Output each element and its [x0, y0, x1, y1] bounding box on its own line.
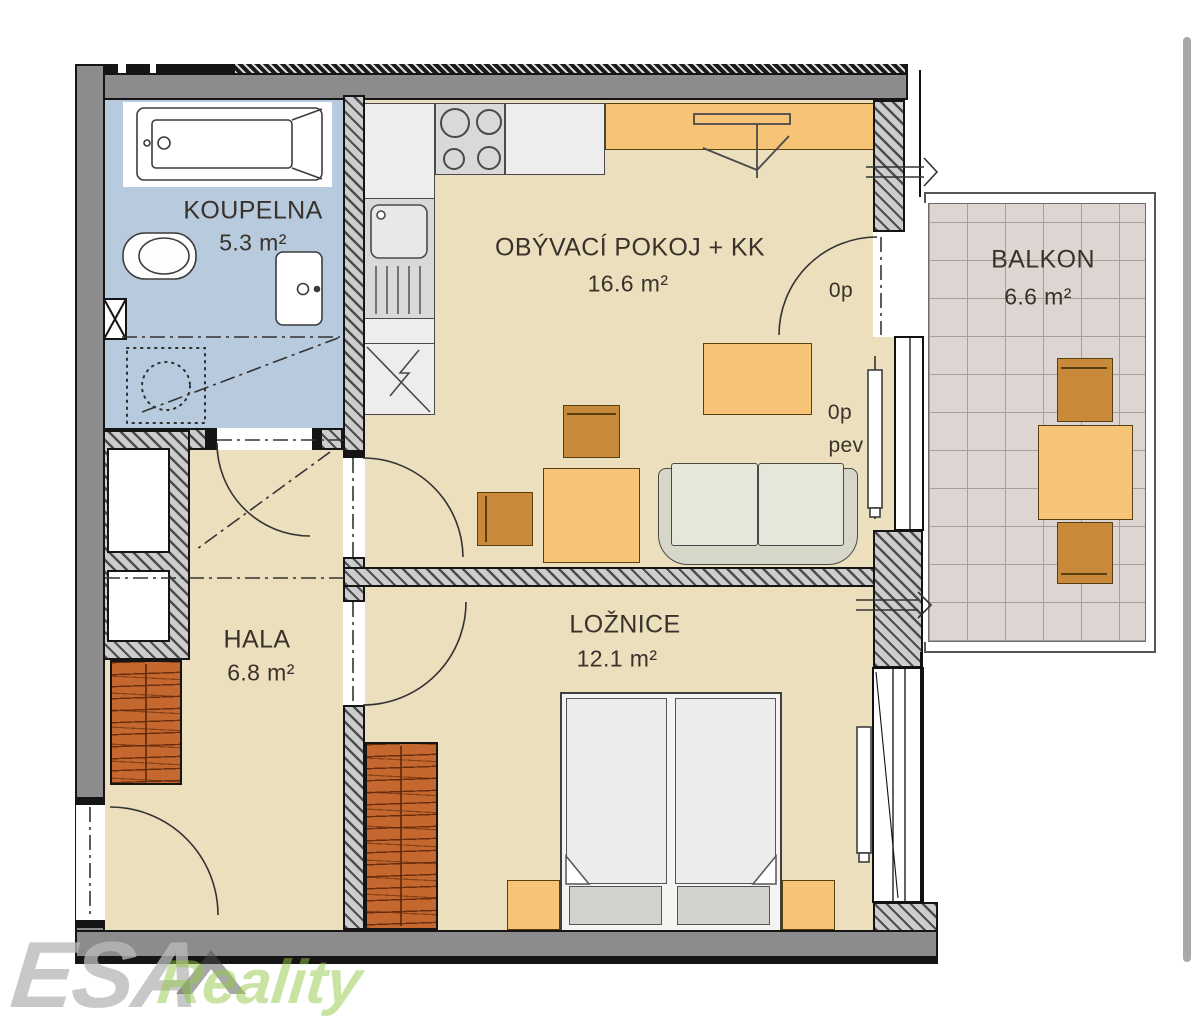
- stove: [435, 103, 505, 175]
- kitchen-counter-mid: [363, 318, 435, 345]
- label-bedroom-area: 12.1 m²: [577, 646, 658, 673]
- label-window-parapet: 0p: [828, 401, 852, 425]
- sofa-cushion-left: [671, 463, 758, 546]
- label-hall-area: 6.8 m²: [227, 660, 295, 687]
- label-bathroom-name: KOUPELNA: [183, 197, 322, 226]
- bed-pillow-left: [569, 886, 662, 925]
- bed-pillow-right: [677, 886, 770, 925]
- label-balcony-door-parapet: 0p: [829, 279, 853, 303]
- label-bathroom-area: 5.3 m²: [219, 230, 287, 257]
- label-hall-name: HALA: [224, 626, 291, 655]
- door-post: [343, 450, 365, 458]
- wall-bath-bottom-right: [320, 428, 343, 450]
- shaft-lower: [107, 570, 170, 642]
- bedroom-window: [873, 668, 923, 902]
- hall-wardrobe: [110, 660, 182, 785]
- balcony-table: [1038, 425, 1133, 520]
- top-wall-gap1: [118, 64, 126, 73]
- wall-hall-bedroom: [343, 705, 365, 930]
- pier-top-right: [873, 100, 905, 232]
- shaft-upper: [107, 448, 170, 553]
- bedroom-wardrobe: [365, 742, 438, 930]
- balcony-chair-bottom: [1057, 522, 1113, 584]
- nightstand-left: [507, 880, 560, 930]
- balcony-door-gap: [873, 232, 923, 337]
- top-wall-gap2: [150, 64, 156, 73]
- pier-mid-right: [873, 530, 923, 668]
- label-bedroom-name: LOŽNICE: [569, 611, 680, 640]
- watermark-reality-text: Reality: [155, 952, 365, 1014]
- bathtub-platform: [123, 102, 332, 187]
- pier-bottom-right: [873, 902, 938, 932]
- label-balcony-area: 6.6 m²: [1004, 284, 1072, 311]
- door-post: [207, 428, 217, 450]
- floor-plan: KOUPELNA 5.3 m² OBÝVACÍ POKOJ + KK 16.6 …: [0, 0, 1200, 1027]
- living-window: [895, 337, 923, 530]
- sofa-cushion-right: [758, 463, 844, 546]
- dining-chair-top: [563, 405, 620, 458]
- dining-chair-left: [477, 492, 533, 546]
- scrollbar[interactable]: [1183, 37, 1191, 962]
- living-room-floor-window-bay: [877, 337, 897, 530]
- wall-living-bedroom: [343, 567, 877, 587]
- kitchen-counter-right: [505, 103, 605, 175]
- top-wall: [78, 73, 908, 100]
- label-balcony-name: BALKON: [991, 246, 1095, 275]
- entrance-door-gap: [76, 805, 105, 920]
- label-window-fixed: pev: [828, 434, 863, 458]
- label-living-area: 16.6 m²: [588, 271, 669, 298]
- door-post: [76, 797, 105, 805]
- kitchen-fridge-unit: [363, 343, 435, 415]
- facade-lines: [920, 70, 921, 902]
- bed-mattress-left: [566, 698, 667, 884]
- balcony-chair-top: [1057, 358, 1113, 422]
- kitchen-sink-unit: [363, 198, 435, 320]
- dining-table: [543, 468, 640, 563]
- label-living-name: OBÝVACÍ POKOJ + KK: [495, 234, 765, 263]
- bed-mattress-right: [675, 698, 776, 884]
- top-wall-hatch: [235, 64, 905, 73]
- living-wardrobe: [605, 103, 875, 150]
- side-table: [703, 343, 812, 415]
- kitchen-counter-top: [363, 103, 435, 200]
- nightstand-right: [782, 880, 835, 930]
- wall-bath-kitchen: [343, 95, 365, 452]
- door-post: [312, 428, 320, 450]
